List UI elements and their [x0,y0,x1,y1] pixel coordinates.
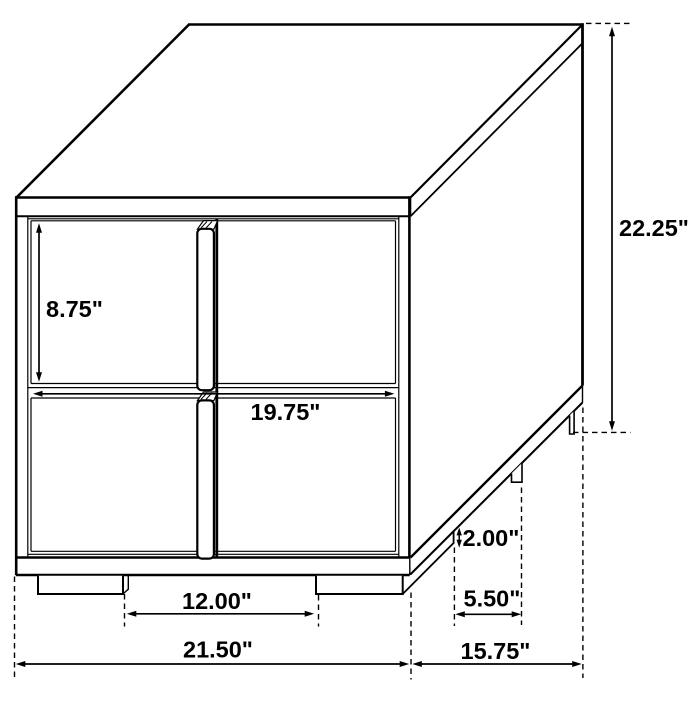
svg-text:5.50": 5.50" [464,586,521,612]
svg-text:22.25": 22.25" [619,215,689,241]
svg-text:12.00": 12.00" [182,588,252,614]
svg-text:8.75": 8.75" [46,296,103,322]
svg-text:2.00": 2.00" [463,525,520,551]
svg-text:19.75": 19.75" [251,399,321,425]
svg-text:15.75": 15.75" [461,638,531,664]
svg-text:21.50": 21.50" [183,637,253,663]
